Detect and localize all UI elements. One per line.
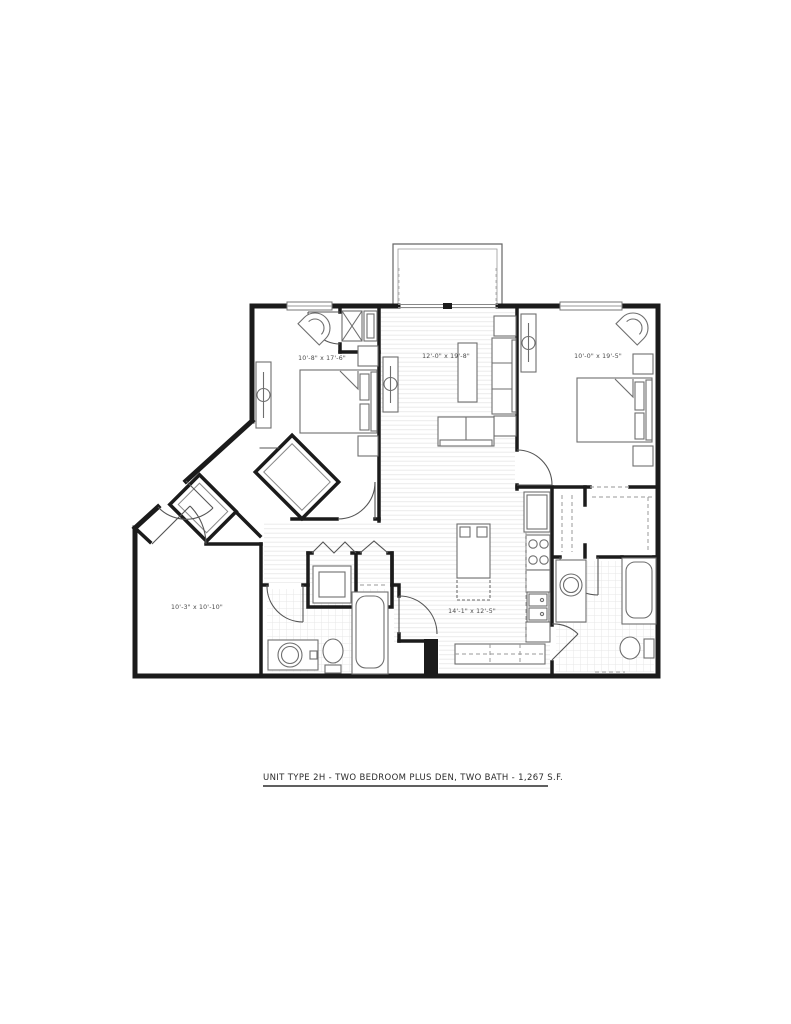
toilet-icon: [620, 637, 654, 659]
kitchen-counter: [526, 570, 550, 592]
loveseat-icon: [438, 417, 494, 446]
bed-icon: [577, 378, 652, 442]
dresser-tv-icon: [521, 314, 536, 372]
room-label-bedroom-2: 10'-0" x 19'-5": [574, 353, 622, 360]
bathtub-icon: [622, 558, 656, 624]
entry-closet-b: [170, 475, 236, 541]
bathtub-icon: [352, 592, 388, 674]
room-label-den: 10'-3" x 10'-10": [171, 604, 223, 611]
end-table-icon: [494, 416, 516, 436]
wall-pier: [424, 639, 438, 676]
bed-icon: [300, 370, 377, 433]
kitchen-sink-icon: [527, 592, 549, 622]
sofa-icon: [492, 338, 516, 414]
dresser-tv-icon: [256, 362, 271, 428]
room-label-living-room: 12'-0" x 19'-8": [422, 353, 470, 360]
balcony: [393, 244, 502, 306]
sheet-title-text: UNIT TYPE 2H - TWO BEDROOM PLUS DEN, TWO…: [263, 773, 563, 783]
washer-dryer-icon: [342, 311, 377, 341]
end-table-icon: [494, 316, 516, 336]
floor-plan-sheet: 10'-8" x 17'-6" 12'-0" x 19'-8" 10'-0" x…: [0, 0, 791, 1024]
floor-plan-drawing: 10'-8" x 17'-6" 12'-0" x 19'-8" 10'-0" x…: [0, 0, 791, 1024]
nightstand-icon: [633, 354, 653, 374]
fridge-icon: [524, 492, 550, 532]
door-arc-icon: [517, 450, 552, 485]
room-label-kitchen: 14'-1" x 12'-5": [448, 608, 496, 615]
corner-chair-icon: [616, 307, 654, 345]
nightstand-icon: [358, 436, 378, 456]
room-label-bedroom-1: 10'-8" x 17'-6": [298, 355, 346, 362]
window-icon: [560, 302, 622, 310]
dresser-tv-icon: [383, 357, 398, 412]
nightstand-icon: [358, 346, 378, 366]
nightstand-icon: [633, 446, 653, 466]
coffee-table-icon: [458, 343, 477, 402]
window-icon: [287, 302, 332, 310]
bathroom-vanity-icon: [556, 560, 586, 622]
toilet-icon: [323, 639, 343, 673]
bathroom-vanity-icon: [268, 640, 318, 670]
kitchen-counter: [526, 622, 550, 642]
closet-shelves-icon: [313, 566, 351, 603]
door-arc-icon: [338, 482, 375, 519]
range-icon: [526, 535, 550, 570]
sheet-title: UNIT TYPE 2H - TWO BEDROOM PLUS DEN, TWO…: [263, 773, 563, 786]
